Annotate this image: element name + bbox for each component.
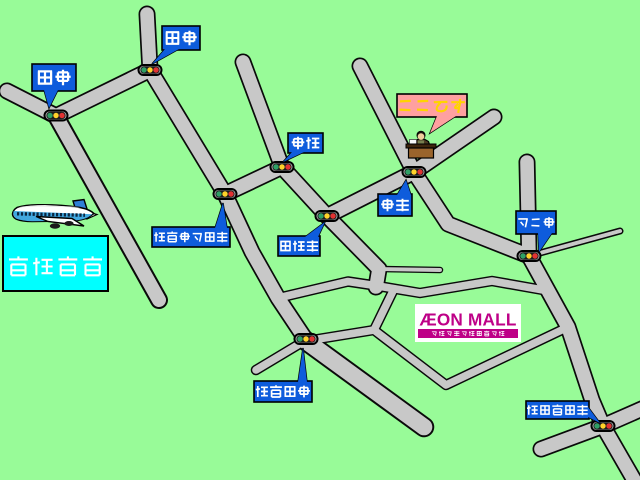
svg-text:ÆON MALL: ÆON MALL bbox=[419, 310, 516, 330]
